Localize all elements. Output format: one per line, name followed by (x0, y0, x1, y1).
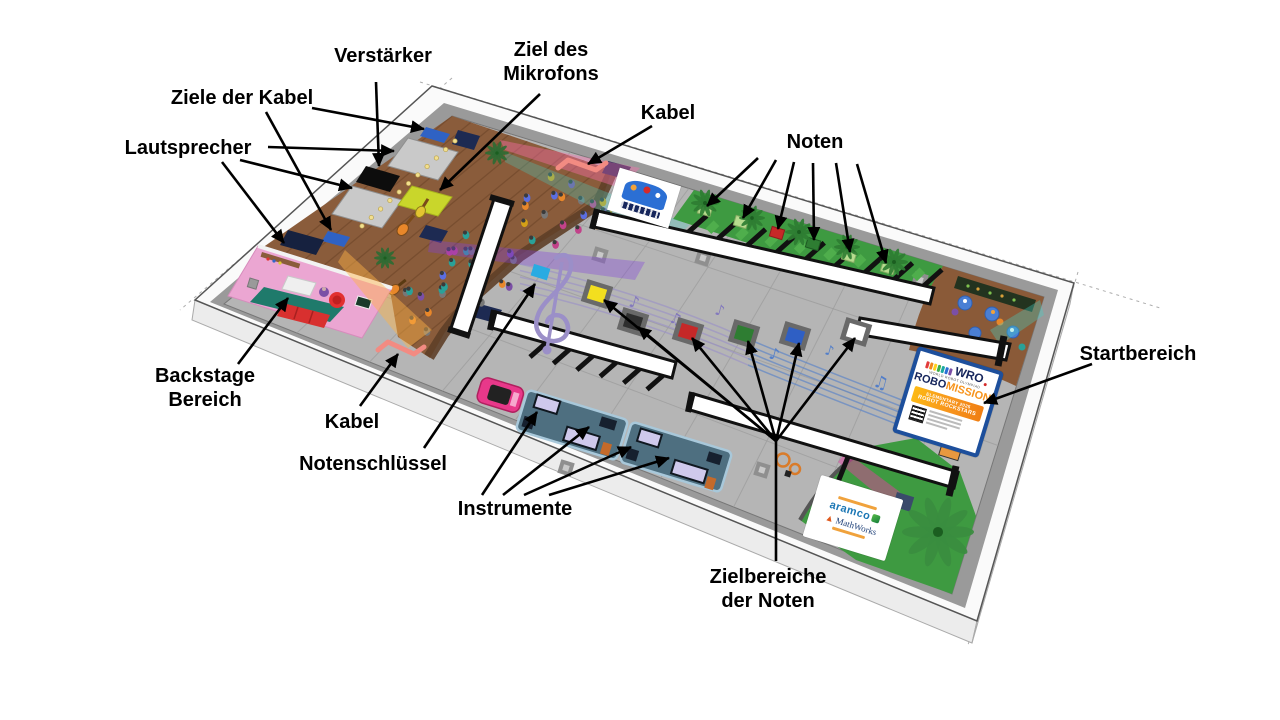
stage-light-icon (453, 139, 457, 143)
stage-light-icon (378, 207, 382, 211)
grass-stub (914, 270, 922, 278)
label-clef: Notenschlüssel (299, 452, 447, 476)
qr-code (908, 404, 927, 423)
grass-stub (738, 230, 746, 238)
grass-stub (826, 250, 834, 258)
stage-light-icon (444, 147, 448, 151)
label-start-area: Startbereich (1080, 342, 1197, 366)
label-instruments: Instrumente (458, 497, 572, 521)
label-cable-targets: Ziele der Kabel (171, 86, 313, 110)
stage-light-icon (406, 181, 410, 185)
label-speakers: Lautsprecher (125, 136, 252, 160)
stage-light-icon (360, 224, 364, 228)
person (952, 309, 959, 316)
label-mic-target: Ziel desMikrofons (503, 38, 599, 87)
label-amplifier: Verstärker (334, 44, 432, 68)
mathworks-triangle-icon: ▲ (824, 513, 835, 524)
stage-light-icon (434, 156, 438, 160)
table (985, 307, 999, 321)
person (1019, 344, 1026, 351)
stage-light-icon (388, 198, 392, 202)
label-backstage: BackstageBereich (155, 364, 255, 413)
aramco-leaf-icon (871, 514, 881, 524)
grass-stub (856, 257, 864, 265)
stage-light-icon (369, 215, 373, 219)
stage-light-icon (416, 173, 420, 177)
label-note-targets: Zielbereicheder Noten (710, 565, 827, 614)
grass-stub (709, 223, 717, 231)
label-cable-bottom: Kabel (325, 410, 379, 434)
label-notes: Noten (787, 130, 844, 154)
stage-light-icon (397, 190, 401, 194)
label-cable-top: Kabel (641, 101, 695, 125)
stage-light-icon (425, 164, 429, 168)
